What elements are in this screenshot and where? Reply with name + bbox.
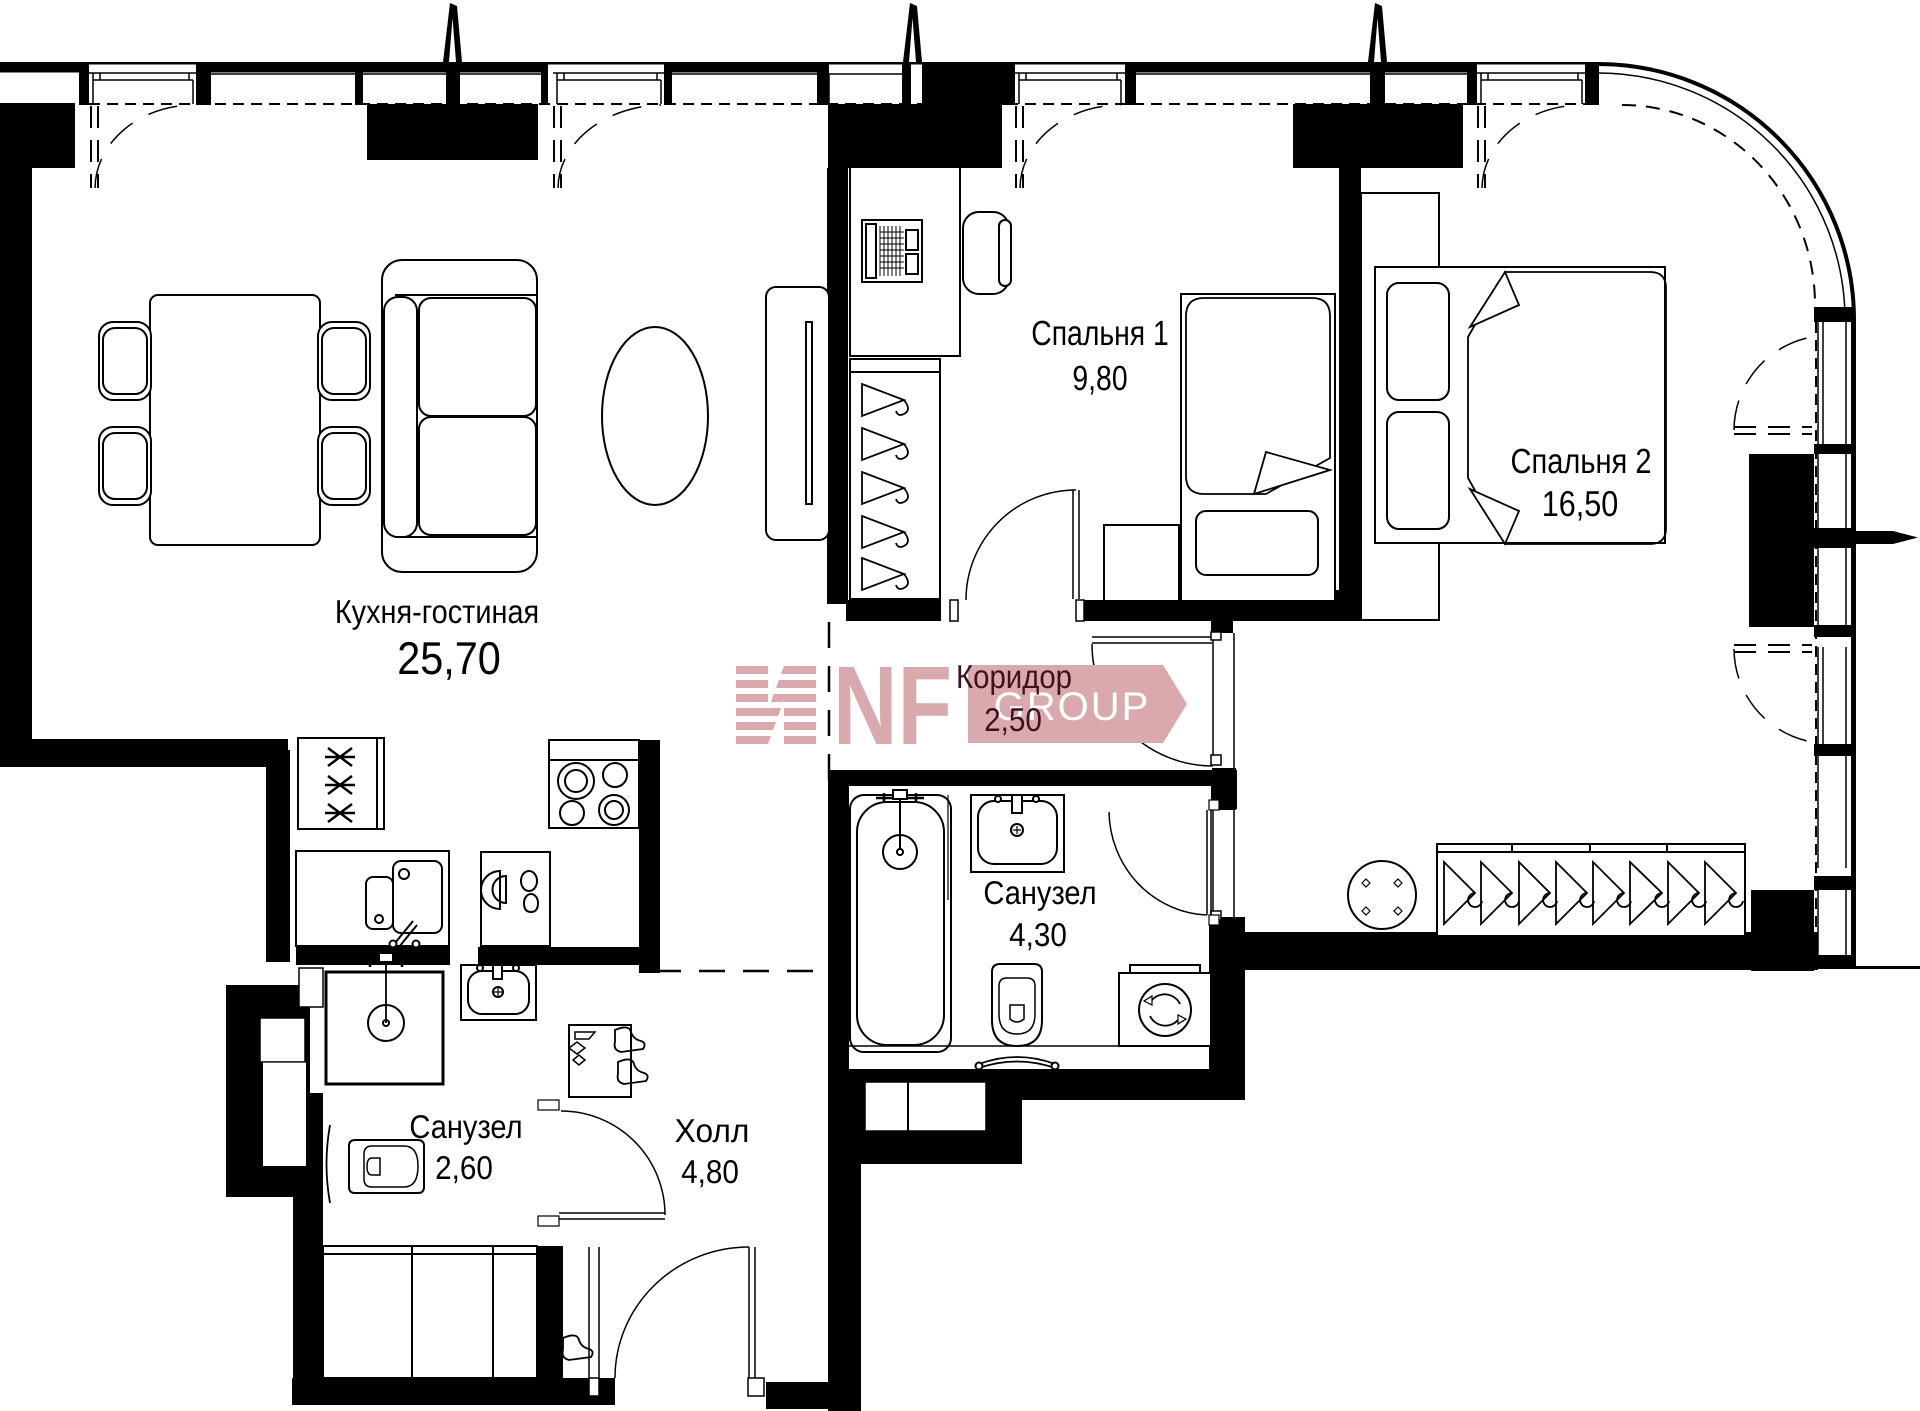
svg-text:2,50: 2,50 <box>984 701 1042 738</box>
svg-text:4,30: 4,30 <box>1009 916 1067 953</box>
svg-text:NF: NF <box>833 643 952 768</box>
svg-text:Спальня 1: Спальня 1 <box>1031 314 1169 353</box>
svg-text:25,70: 25,70 <box>397 632 501 684</box>
svg-text:4,80: 4,80 <box>681 1153 739 1190</box>
svg-text:Санузел: Санузел <box>409 1108 522 1145</box>
svg-text:9,80: 9,80 <box>1072 359 1127 398</box>
svg-text:2,60: 2,60 <box>435 1149 493 1186</box>
svg-text:16,50: 16,50 <box>1542 483 1619 524</box>
svg-text:Холл: Холл <box>675 1112 750 1149</box>
svg-text:Кухня-гостиная: Кухня-гостиная <box>335 593 539 630</box>
svg-text:Санузел: Санузел <box>983 874 1096 911</box>
svg-text:Спальня 2: Спальня 2 <box>1511 442 1652 481</box>
svg-text:Коридор: Коридор <box>956 658 1072 695</box>
